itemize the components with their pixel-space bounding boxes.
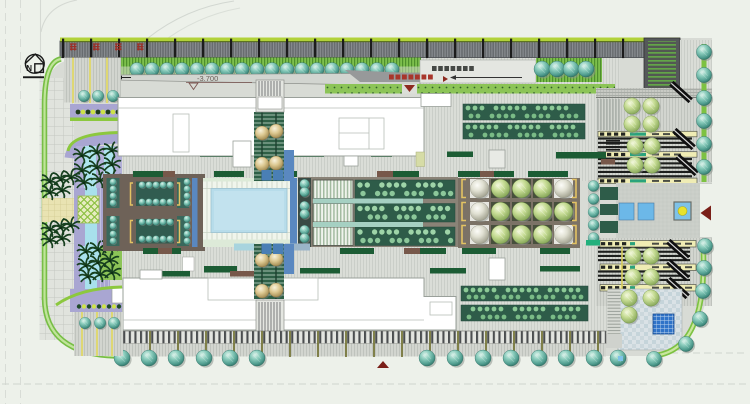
- svg-text:N: N: [26, 64, 32, 73]
- svg-text:-3.700: -3.700: [197, 74, 218, 83]
